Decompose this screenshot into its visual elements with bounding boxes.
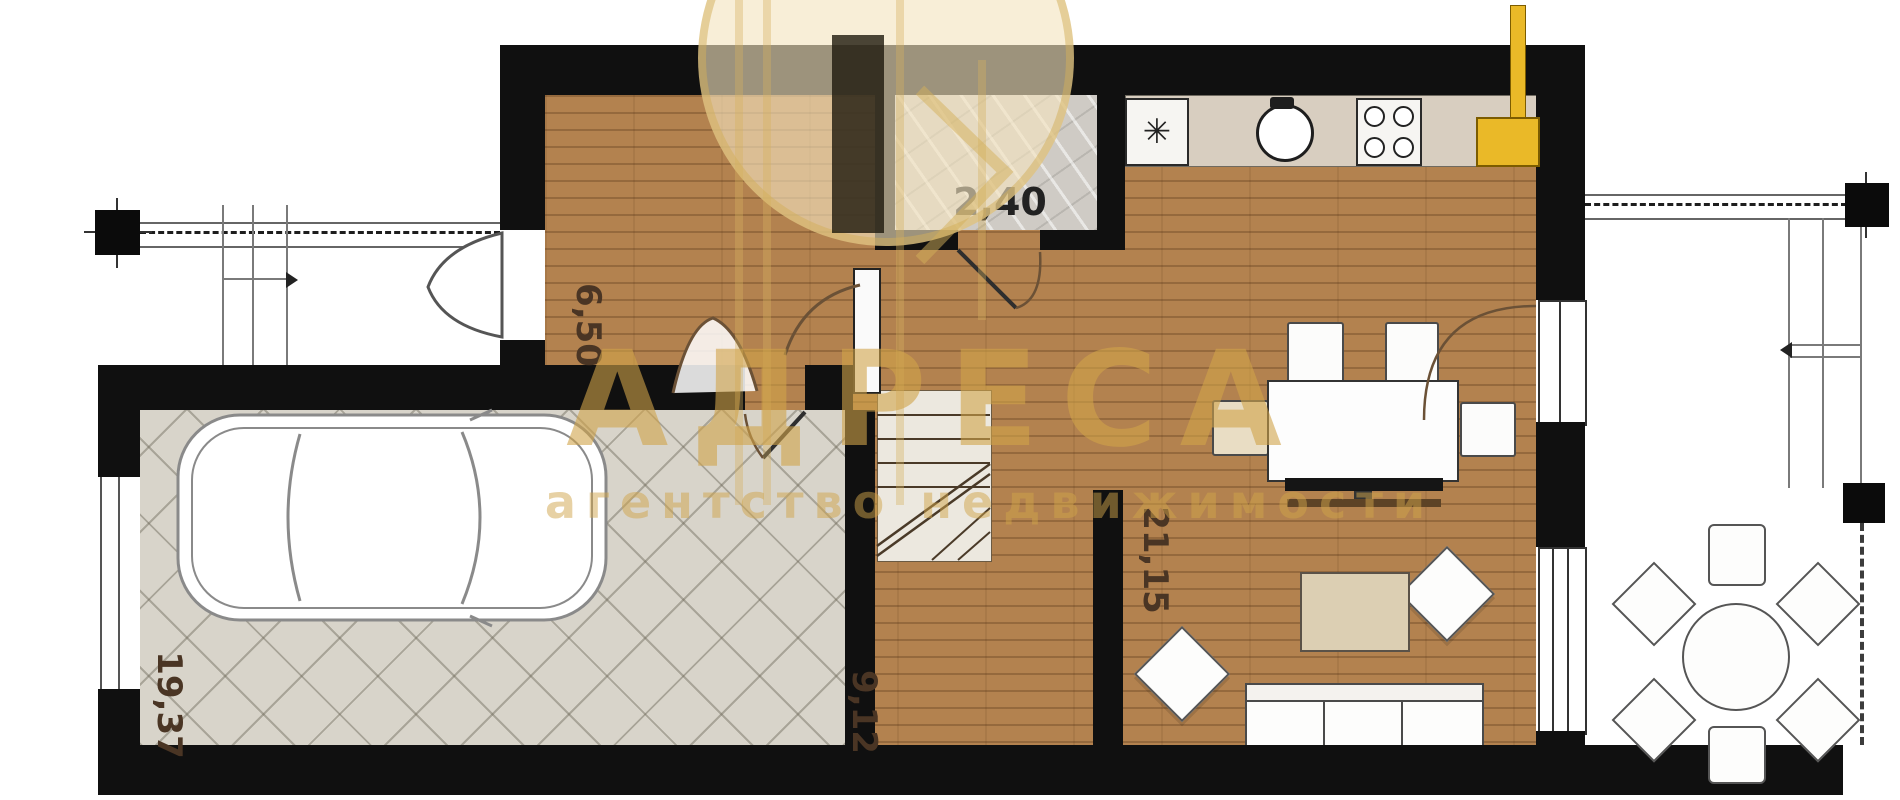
stair-tread (877, 462, 990, 464)
entry-path-step (222, 278, 288, 280)
dining-table (1267, 380, 1459, 482)
right-fence-post (1845, 183, 1889, 227)
dining-chair-beige (1212, 400, 1269, 456)
left-fence (140, 222, 500, 248)
wall-garage-left-corner (98, 689, 140, 749)
stair-tread (877, 438, 990, 440)
wall-left-upper (500, 95, 545, 230)
wall-garage-top-right (805, 365, 853, 410)
right-fence-dashes (1585, 203, 1847, 206)
wall-living-corridor (1093, 490, 1123, 745)
stair-tread (877, 414, 990, 416)
tv (1285, 478, 1443, 491)
entry-path-rail (222, 205, 224, 365)
sofa-back (1247, 685, 1482, 702)
wall-bottom (98, 745, 1843, 795)
terrace-round-table (1682, 603, 1790, 711)
garage-roller-door (100, 477, 120, 689)
burner-icon (1393, 106, 1414, 127)
wall-right-middle (1536, 422, 1585, 547)
boiler-yellow-box (1476, 117, 1540, 167)
entrance-door-swing (428, 233, 502, 337)
burner-icon (1393, 137, 1414, 158)
side-stair-step (1788, 356, 1862, 358)
window-right (1538, 547, 1587, 735)
wall-right-upper (1536, 95, 1585, 300)
room-area-label-garage: 19,37 (149, 640, 189, 770)
left-fence-post (95, 210, 140, 255)
tv-shelf (1287, 499, 1441, 507)
fridge-snowflake-icon: ✳ (1143, 112, 1172, 152)
room-area-label-bathroom: 2,40 (945, 180, 1055, 224)
burner-icon (1364, 106, 1385, 127)
side-stair-step (1788, 344, 1862, 346)
dining-chair (1287, 322, 1344, 386)
wall-bathroom-left (875, 95, 895, 250)
direction-arrow-icon (286, 272, 298, 288)
direction-arrow-icon (1780, 342, 1792, 358)
wall-right-lower (1536, 731, 1585, 745)
dining-chair (1460, 402, 1516, 457)
wall-garage-top (98, 365, 745, 410)
entry-path-rail (252, 205, 254, 365)
dining-chair (1385, 322, 1439, 384)
terrace-door (1538, 300, 1587, 426)
terrace-door-frame (1559, 302, 1561, 424)
window-pane-line (1567, 549, 1569, 733)
terrace-chair (1708, 726, 1766, 784)
tv-stand (1354, 491, 1372, 499)
left-fence-dashes (140, 231, 500, 234)
fridge-unit: ✳ (1125, 98, 1189, 166)
terrace-chair (1612, 562, 1697, 647)
floor-plan: ✳ (0, 0, 1900, 800)
wall-bathroom-right (1097, 95, 1125, 250)
terrace-chair (1776, 562, 1861, 647)
room-area-label-living: 21,15 (1135, 495, 1175, 625)
window-pane-line (1552, 549, 1554, 733)
room-area-label-corridor: 9,12 (844, 652, 884, 772)
side-stair-rail (1822, 218, 1824, 488)
side-stair-post (1843, 483, 1885, 523)
garage-floor (140, 410, 845, 745)
stove-unit (1356, 98, 1422, 166)
stair-tread (877, 486, 990, 488)
side-stair-rail (1860, 218, 1862, 488)
coffee-table (1300, 572, 1410, 652)
wall-top (500, 45, 1585, 95)
chimney-flue (1510, 5, 1526, 123)
hall-partition (853, 268, 881, 394)
room-area-label-hallway: 6,50 (568, 265, 608, 385)
wall-bathroom-bottom-left (875, 230, 958, 250)
right-fence (1585, 194, 1847, 220)
kitchen-sink-tap (1270, 97, 1294, 109)
terrace-boundary-dashed (1860, 523, 1864, 745)
burner-icon (1364, 137, 1385, 158)
kitchen-sink (1256, 104, 1314, 162)
terrace-chair (1708, 524, 1766, 586)
